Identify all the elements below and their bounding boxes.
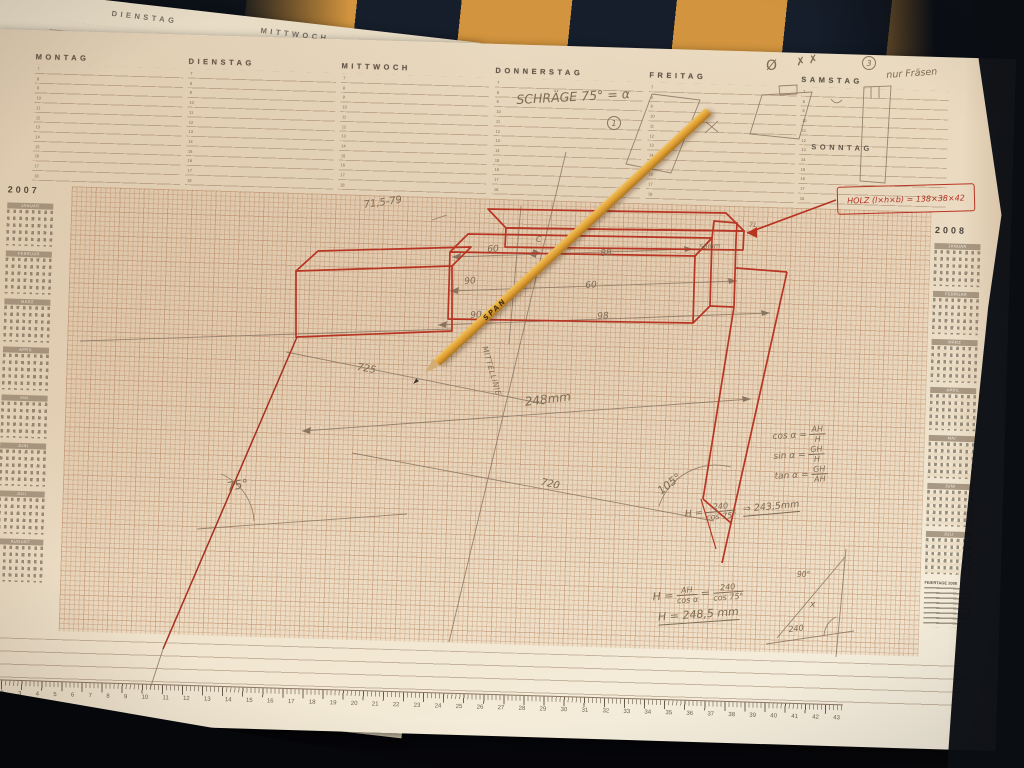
mini-month-grid <box>0 497 45 534</box>
ruler-number: 21 <box>372 701 379 707</box>
ruler-number: 10 <box>141 695 148 701</box>
ruler-number: 6 <box>71 693 75 699</box>
ruler-number: 41 <box>791 714 798 720</box>
mini-month: MAI <box>928 435 975 479</box>
weekday-column: MITTWOCH 7 8 9 10 11 12 13 14 15 16 17 1… <box>341 61 491 74</box>
trig-formula-row: tan α =GHAH <box>774 464 831 486</box>
hour-lines <box>338 73 489 195</box>
weekday-header: MITTWOCH <box>341 61 491 74</box>
ruler-number: 24 <box>435 703 442 709</box>
weekday-header: DONNERSTAG <box>495 66 645 79</box>
mini-month: APRIL <box>2 346 49 390</box>
ruler-number: 28 <box>518 706 525 712</box>
ruler-number: 27 <box>498 705 505 711</box>
ruler-number: 18 <box>309 700 316 706</box>
sonntag-header: SONNTAG <box>811 142 873 153</box>
ruler-number: 36 <box>686 711 693 717</box>
ruler-number: 35 <box>665 710 672 716</box>
photo-scene: DIENSTAGMITTWOCH MONTAG 7 8 9 10 11 12 1… <box>0 0 1024 768</box>
ruler-number: 23 <box>414 703 421 709</box>
mini-month: APRIL <box>929 387 976 431</box>
ruler-number: 32 <box>602 708 609 714</box>
ruler-number: 13 <box>204 696 211 702</box>
ruler-number: 7 <box>88 693 92 699</box>
mini-month-grid <box>928 442 975 479</box>
trig-formula-row: sin α =GHH <box>773 444 830 466</box>
handwritten-corner-240: 240 <box>788 623 804 634</box>
mini-month: JANUAR <box>933 243 980 287</box>
ruler-number: 29 <box>539 706 546 712</box>
handwritten-dim-60b: 60 <box>585 280 597 291</box>
weekday-column: DIENSTAG 7 8 9 10 11 12 13 14 15 16 17 1… <box>188 57 338 70</box>
ruler-number: 4 <box>36 691 40 697</box>
mini-month-grid <box>3 305 50 342</box>
height-formula-bottom: H =AHcos α=240cos 75° H = 248,5 mm <box>652 581 748 625</box>
weekday-header: MONTAG <box>36 52 186 65</box>
weekday-column: DONNERSTAG 7 8 9 10 11 12 13 14 15 16 17… <box>495 66 645 79</box>
mini-month: JULI <box>0 490 45 534</box>
mini-month: MAI <box>0 394 47 438</box>
circled-number-3: 3 <box>862 56 876 70</box>
ruler-number: 16 <box>267 698 274 704</box>
handwritten-dim-98: 98 <box>597 311 609 322</box>
handwritten-label-71: 71 <box>749 222 757 229</box>
mini-month-grid <box>929 394 976 431</box>
handwritten-corner-x: x <box>810 600 815 610</box>
ruler-number: 14 <box>225 697 232 703</box>
handwritten-slashed-zero-mark: Ø <box>766 58 777 74</box>
graph-paper-grid <box>59 186 932 656</box>
mini-month-grid <box>932 298 979 335</box>
ruler-number: 5 <box>53 692 57 698</box>
mini-month: FEBRUAR <box>932 291 979 335</box>
ruler-number: 40 <box>770 713 777 719</box>
under-sheet-day-header: DIENSTAG <box>111 9 178 25</box>
ruler-number: 34 <box>644 710 651 716</box>
mini-month: JANUAR <box>6 202 53 246</box>
mini-month-grid <box>0 545 43 582</box>
desk-pad-calendar-sheet: MONTAG 7 8 9 10 11 12 13 14 15 16 17 18 … <box>0 29 1016 751</box>
red-callout-box: HOLZ (l×h×b) = 138×38×42 <box>837 183 976 215</box>
ruler-number: 15 <box>246 698 253 704</box>
trig-formula-block: cos α =AHH sin α =GHH tan α =GHAH <box>772 424 831 487</box>
ruler-number: 11 <box>162 695 168 701</box>
ruler-number: 30 <box>560 707 567 713</box>
ruler-number: 33 <box>623 709 630 715</box>
mini-month-name: AUGUST <box>0 538 43 545</box>
handwritten-label-c: C <box>536 235 542 244</box>
ruler-number: 12 <box>183 696 190 702</box>
ruler-number: 43 <box>833 715 840 721</box>
trig-formula-row: cos α =AHH <box>772 424 829 446</box>
mini-month-grid <box>2 353 49 390</box>
ruler-number: 37 <box>707 711 714 717</box>
mini-month-grid <box>0 401 47 438</box>
year-label-2008: 2008 <box>935 225 983 236</box>
ruler-number: 25 <box>456 704 463 710</box>
ruler-number: 20 <box>351 701 358 707</box>
ruler-number: 19 <box>330 700 337 706</box>
handwritten-label-50mm: 50mm <box>699 242 720 251</box>
ruler-number: 42 <box>812 715 819 721</box>
mini-month: MÄRZ <box>930 339 977 383</box>
year-label-2007: 2007 <box>8 184 56 195</box>
mini-month: AUGUST <box>0 538 43 582</box>
handwritten-dim-90a: 90 <box>464 276 476 287</box>
handwritten-dim-88: 88 <box>600 248 612 259</box>
ruler-number: 8 <box>106 694 110 700</box>
hour-lines <box>32 64 183 186</box>
ruler-number: 22 <box>393 702 400 708</box>
ruler-number: 39 <box>749 713 756 719</box>
red-callout-text: HOLZ (l×h×b) = 138×38×42 <box>847 193 965 205</box>
handwritten-corner-90deg: 90° <box>797 570 810 579</box>
mini-month-grid <box>933 250 980 287</box>
ruler-number: 17 <box>288 699 295 705</box>
circled-number-1: 1 <box>607 116 621 130</box>
mini-month-grid <box>0 449 46 486</box>
ruler-number: 31 <box>581 708 588 714</box>
mini-month: FEBRUAR <box>5 250 52 294</box>
handwritten-dim-60: 60 <box>487 244 499 255</box>
ruler-number: 26 <box>477 705 484 711</box>
mini-month: JUNI <box>0 442 46 486</box>
mini-month: MÄRZ <box>3 298 50 342</box>
weekday-column: MONTAG 7 8 9 10 11 12 13 14 15 16 17 18 <box>36 52 186 65</box>
mini-month-grid <box>5 257 52 294</box>
mini-month-grid <box>930 346 977 383</box>
mini-month-grid <box>6 209 53 246</box>
ruler-number: 9 <box>124 694 128 700</box>
weekday-header: DIENSTAG <box>188 57 338 70</box>
hour-lines <box>185 69 336 191</box>
ruler-number: 38 <box>728 712 735 718</box>
